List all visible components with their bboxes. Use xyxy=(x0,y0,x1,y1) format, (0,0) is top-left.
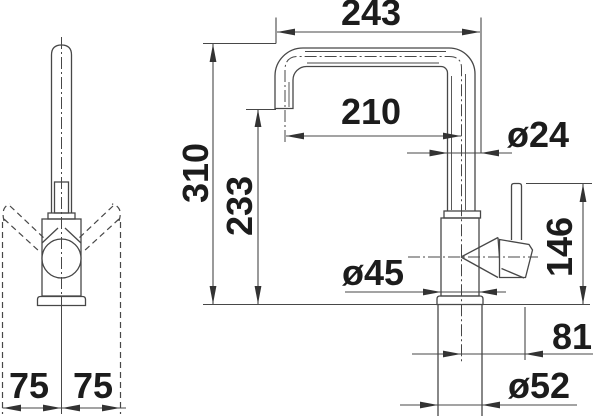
dim-spout-reach-label: 210 xyxy=(341,94,401,130)
dim-base-diameter-label: ø52 xyxy=(508,368,570,404)
side-collar xyxy=(444,211,481,218)
dim-body-diameter-label: ø45 xyxy=(342,255,404,291)
dim-overall-width-label: 243 xyxy=(341,0,401,31)
dim-swivel-left-label: 75 xyxy=(9,368,49,404)
dim-spout-tube-diameter-label: ø24 xyxy=(507,117,569,153)
faucet-drawing xyxy=(0,0,600,419)
dim-overall-height-label: 310 xyxy=(178,143,214,203)
dim-spout-outlet-height-label: 233 xyxy=(222,176,258,236)
technical-drawing-canvas: 243 210 ø24 310 233 ø45 146 81 ø52 75 75 xyxy=(0,0,600,419)
dim-swivel-right-label: 75 xyxy=(73,368,113,404)
side-spout-inner xyxy=(293,67,448,212)
dimension-lines xyxy=(3,18,594,409)
dim-lever-height-label: 146 xyxy=(542,217,578,277)
extension-lines xyxy=(203,18,592,361)
handle-grip xyxy=(500,240,533,278)
side-base-flange xyxy=(437,296,483,305)
dim-handle-projection-label: 81 xyxy=(552,319,592,355)
handle-lever xyxy=(512,184,522,241)
centerlines xyxy=(62,37,539,363)
